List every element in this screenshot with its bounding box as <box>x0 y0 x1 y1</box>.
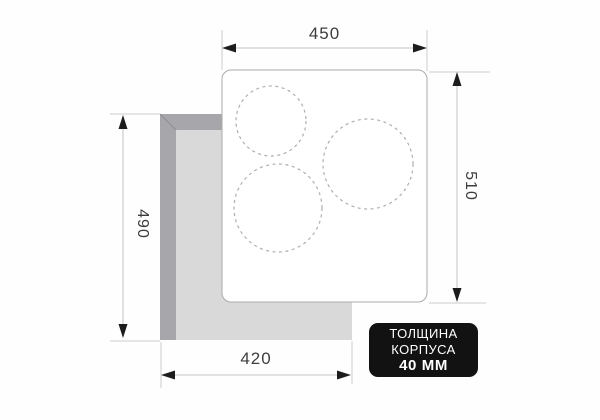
dimension-right <box>429 72 490 303</box>
badge-line-3: 40 ММ <box>399 358 448 374</box>
arrowhead-right-icon <box>337 371 351 380</box>
badge-line-1: ТОЛЩИНА <box>389 326 457 342</box>
cutout-left-wall <box>160 114 176 340</box>
arrowhead-up-icon <box>453 72 462 86</box>
cooktop-panel <box>222 70 427 302</box>
hob-installation-diagram: 450 510 490 420 ТОЛЩИНА КОРПУСА 40 ММ <box>0 0 600 420</box>
cooktop-panel-surface <box>222 70 427 302</box>
dimension-label-bottom: 420 <box>161 349 351 369</box>
arrowhead-right-icon <box>413 44 427 53</box>
badge-line-2: КОРПУСА <box>391 342 455 358</box>
dimension-label-top: 450 <box>222 24 427 44</box>
arrowhead-down-icon <box>119 324 128 338</box>
dimension-label-right: 510 <box>461 160 479 212</box>
arrowhead-down-icon <box>453 288 462 302</box>
thickness-badge: ТОЛЩИНА КОРПУСА 40 ММ <box>369 323 478 377</box>
arrowhead-left-icon <box>161 371 175 380</box>
dimension-label-left: 490 <box>133 198 151 250</box>
arrowhead-left-icon <box>222 44 236 53</box>
arrowhead-up-icon <box>119 115 128 129</box>
